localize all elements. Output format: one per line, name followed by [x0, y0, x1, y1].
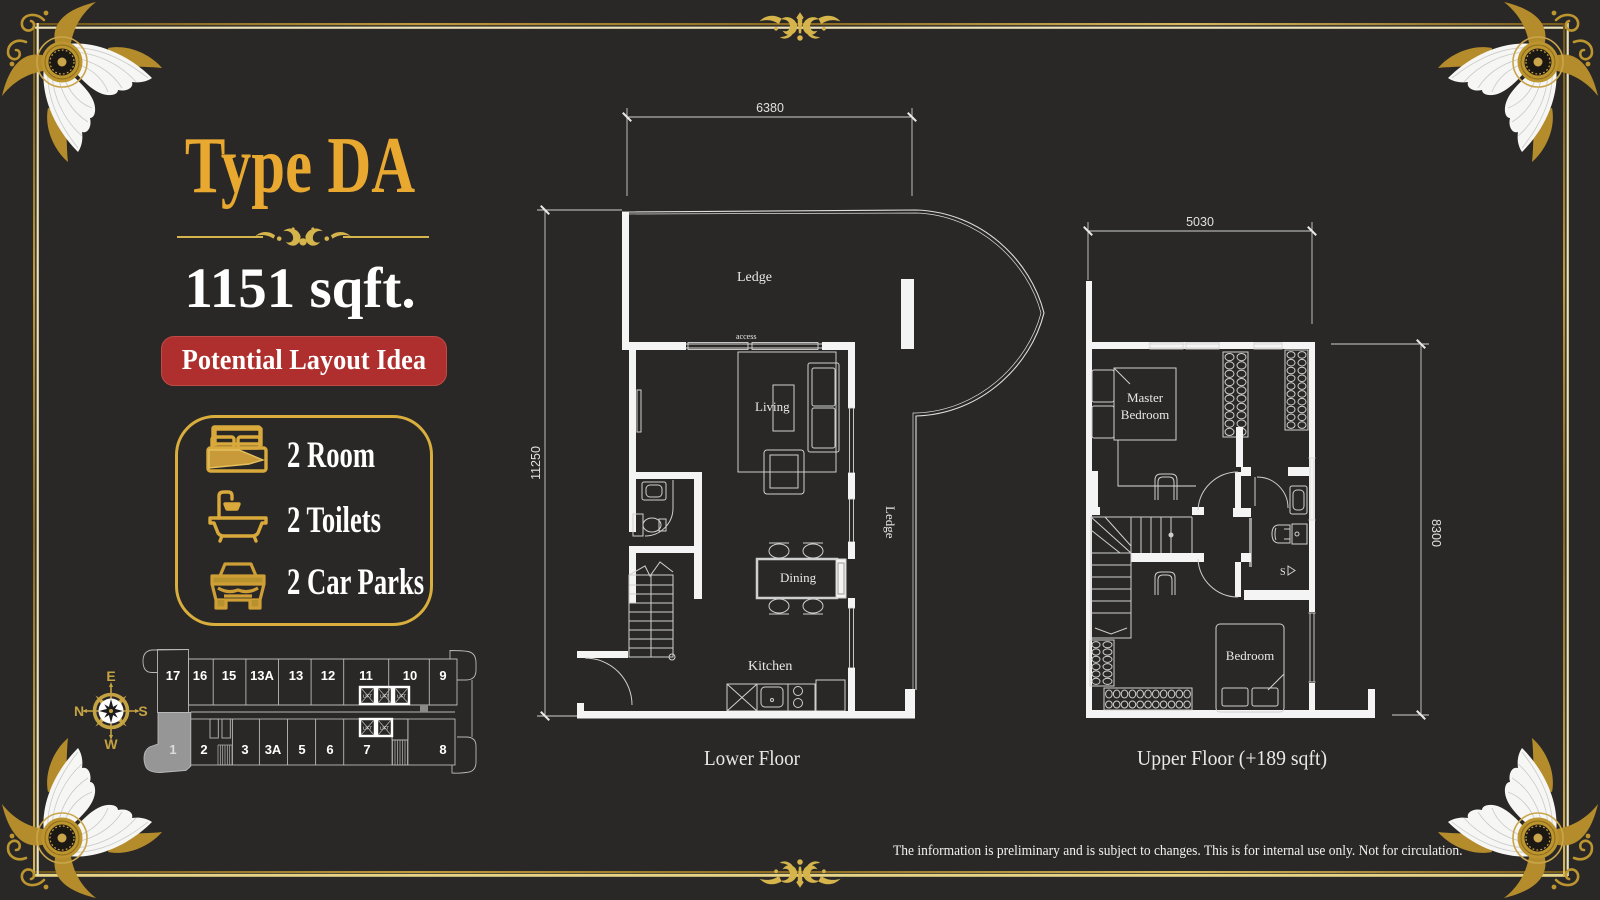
svg-text:2: 2 [200, 742, 207, 757]
svg-text:LIFT: LIFT [363, 726, 373, 731]
svg-text:9: 9 [439, 668, 446, 683]
svg-text:11250: 11250 [529, 446, 543, 480]
svg-text:Kitchen: Kitchen [748, 659, 792, 674]
svg-text:N: N [74, 703, 84, 719]
svg-text:S: S [1280, 567, 1286, 578]
svg-text:LIFT: LIFT [397, 694, 407, 699]
svg-text:15: 15 [222, 668, 236, 683]
svg-text:LIFT: LIFT [380, 694, 390, 699]
svg-text:13A: 13A [250, 668, 274, 683]
svg-text:5030: 5030 [1186, 215, 1214, 229]
svg-text:6: 6 [326, 742, 333, 757]
svg-text:12: 12 [321, 668, 335, 683]
svg-text:Ledge: Ledge [737, 270, 772, 285]
svg-text:3: 3 [241, 742, 248, 757]
svg-text:Bedroom: Bedroom [1121, 407, 1169, 422]
svg-text:6380: 6380 [756, 101, 784, 115]
svg-text:Dining: Dining [780, 570, 817, 585]
svg-text:8300: 8300 [1429, 519, 1443, 547]
svg-text:Bedroom: Bedroom [1226, 648, 1274, 663]
svg-text:LIFT: LIFT [363, 694, 373, 699]
svg-text:Lower Floor: Lower Floor [704, 746, 800, 770]
svg-text:Upper Floor (+189 sqft): Upper Floor (+189 sqft) [1137, 746, 1327, 770]
svg-text:8: 8 [439, 742, 446, 757]
svg-text:E: E [106, 668, 115, 684]
svg-text:16: 16 [193, 668, 207, 683]
svg-text:LIFT: LIFT [380, 726, 390, 731]
svg-text:13: 13 [289, 668, 303, 683]
svg-text:S: S [138, 703, 147, 719]
svg-text:1: 1 [169, 742, 176, 757]
svg-text:17: 17 [166, 668, 180, 683]
svg-text:3A: 3A [265, 742, 282, 757]
svg-text:5: 5 [298, 742, 305, 757]
svg-text:10: 10 [403, 668, 417, 683]
svg-text:Master: Master [1127, 390, 1164, 405]
svg-text:access: access [736, 332, 756, 341]
svg-text:Ledge: Ledge [883, 506, 898, 539]
svg-text:W: W [104, 736, 118, 752]
svg-text:11: 11 [359, 668, 373, 683]
svg-text:7: 7 [363, 742, 370, 757]
